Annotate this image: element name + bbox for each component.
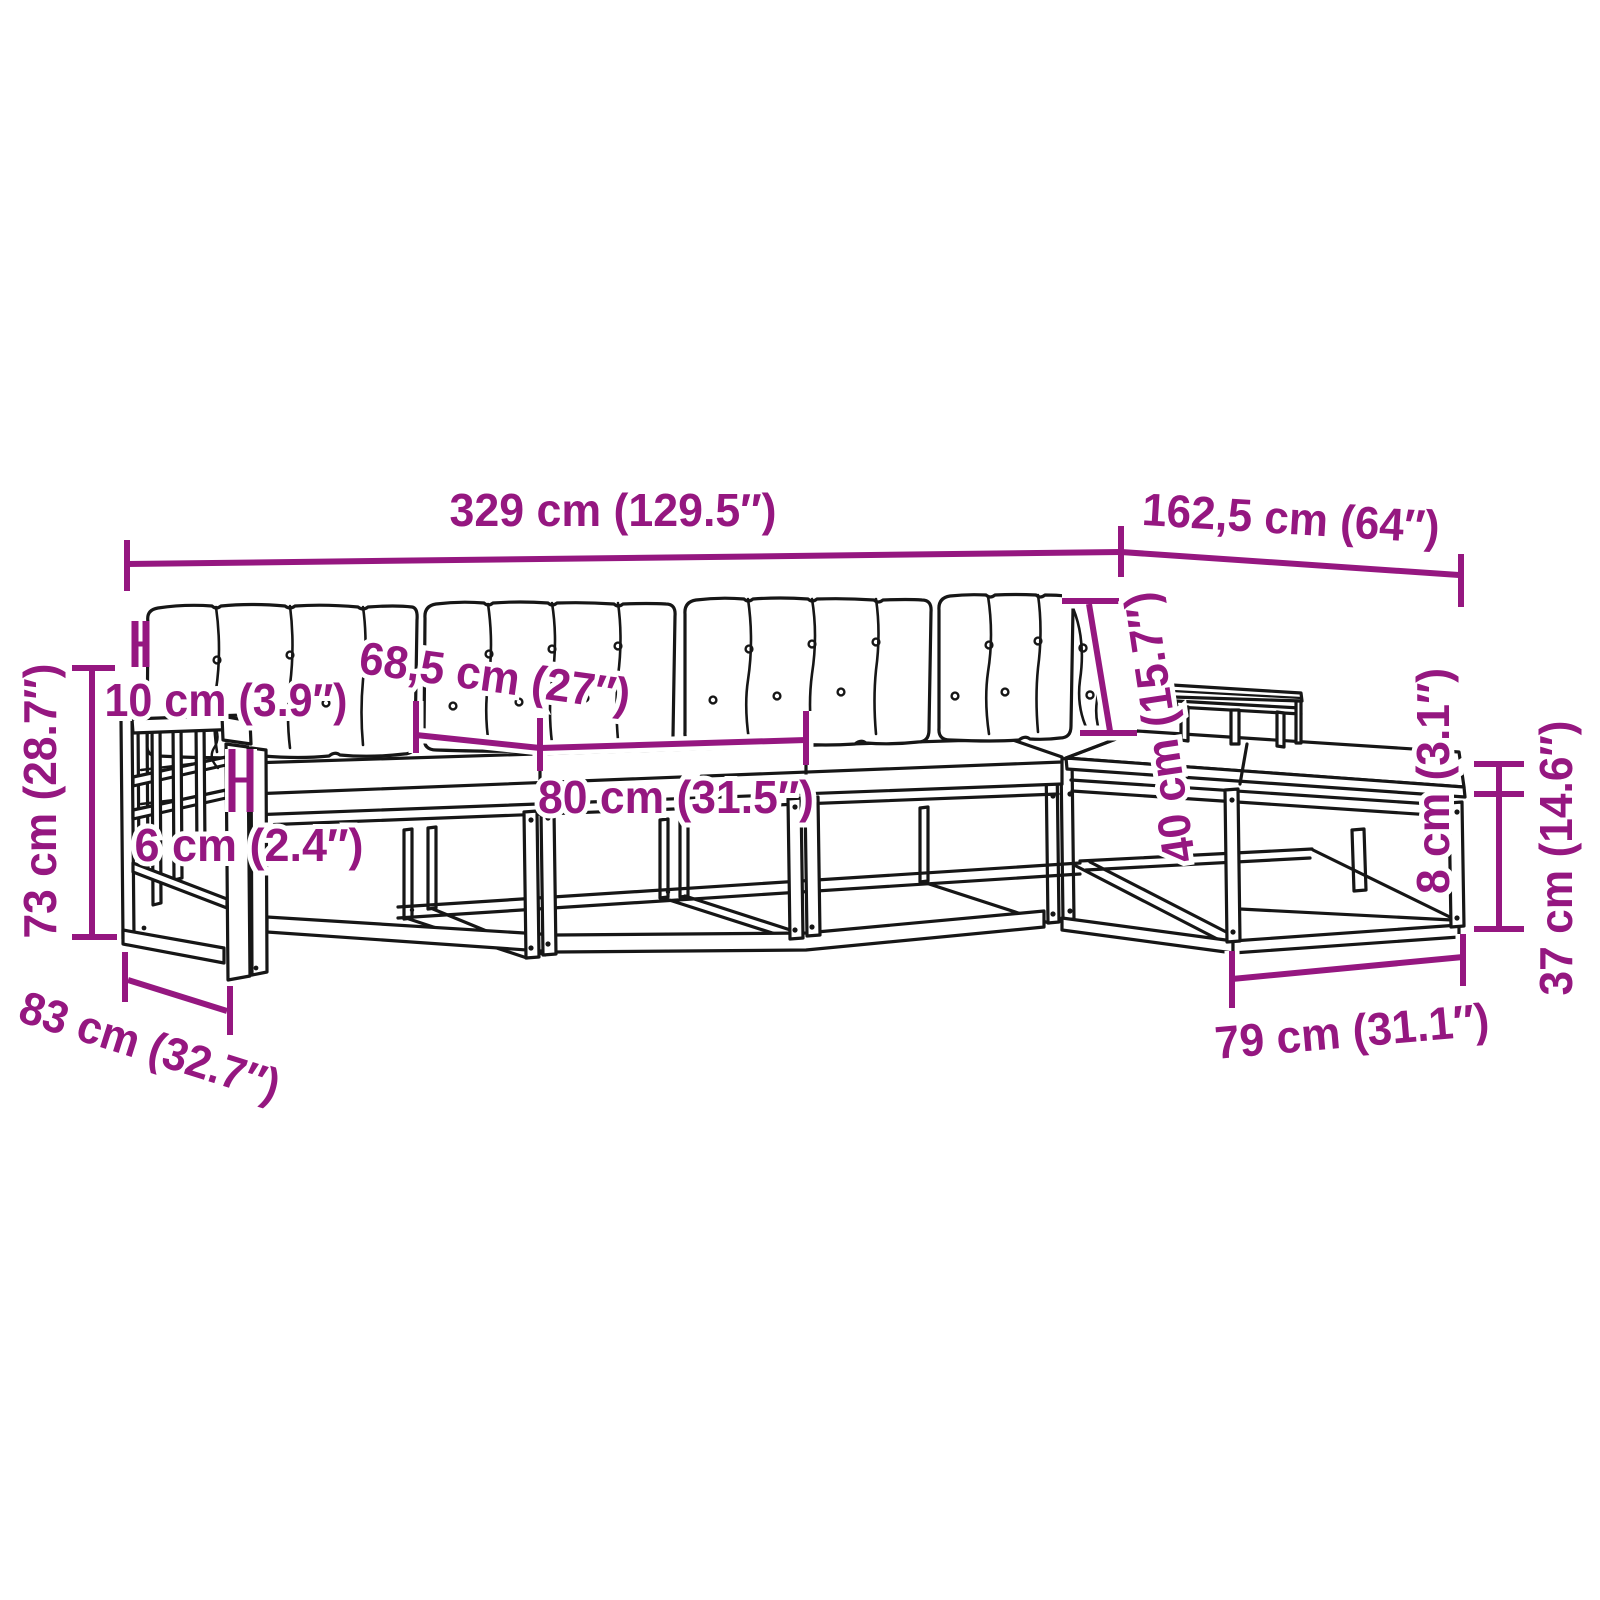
svg-text:10 cm (3.9″): 10 cm (3.9″)	[105, 674, 348, 726]
svg-text:329 cm (129.5″): 329 cm (129.5″)	[450, 484, 777, 536]
svg-text:37 cm (14.6″): 37 cm (14.6″)	[1530, 721, 1582, 996]
svg-text:73 cm (28.7″): 73 cm (28.7″)	[14, 664, 66, 939]
svg-text:8 cm (3.1″): 8 cm (3.1″)	[1407, 668, 1459, 894]
svg-text:80 cm (31.5″): 80 cm (31.5″)	[538, 771, 814, 823]
svg-text:6 cm (2.4″): 6 cm (2.4″)	[135, 819, 364, 871]
